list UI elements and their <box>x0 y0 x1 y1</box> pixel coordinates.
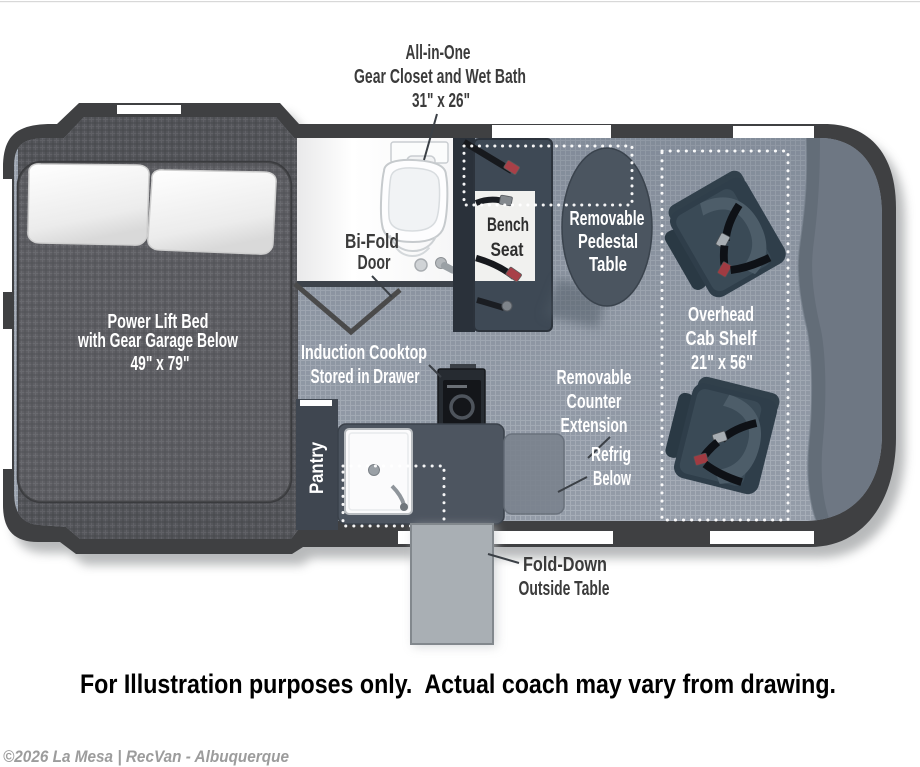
svg-text:Table: Table <box>589 254 627 276</box>
svg-text:with Gear Garage Below: with Gear Garage Below <box>77 330 238 352</box>
svg-text:Counter: Counter <box>567 391 622 413</box>
svg-text:Below: Below <box>593 468 631 490</box>
svg-text:Outside Table: Outside Table <box>519 578 610 600</box>
svg-text:Extension: Extension <box>561 415 628 437</box>
svg-text:Gear Closet and Wet Bath: Gear Closet and Wet Bath <box>354 66 526 88</box>
svg-text:Pedestal: Pedestal <box>578 231 638 253</box>
svg-text:31" x 26": 31" x 26" <box>412 90 470 112</box>
svg-text:21" x 56": 21" x 56" <box>691 352 753 374</box>
svg-text:Door: Door <box>358 252 391 274</box>
svg-text:Fold-Down: Fold-Down <box>523 554 607 576</box>
svg-text:All-in-One: All-in-One <box>406 42 471 64</box>
svg-text:For Illustration purposes only: For Illustration purposes only. Actual c… <box>80 669 836 699</box>
svg-text:Pantry: Pantry <box>307 442 328 494</box>
svg-text:Stored in Drawer: Stored in Drawer <box>311 366 420 388</box>
svg-text:Removable: Removable <box>557 367 632 389</box>
svg-text:©2026 La Mesa | RecVan - Albuq: ©2026 La Mesa | RecVan - Albuquerque <box>3 747 289 766</box>
svg-text:Seat: Seat <box>491 240 525 261</box>
svg-text:Induction Cooktop: Induction Cooktop <box>301 342 427 364</box>
svg-text:Removable: Removable <box>570 208 645 230</box>
svg-text:Bi-Fold: Bi-Fold <box>345 231 399 253</box>
svg-text:Bench: Bench <box>487 215 529 236</box>
svg-text:49" x 79": 49" x 79" <box>131 353 190 375</box>
svg-text:Overhead: Overhead <box>688 304 754 326</box>
svg-text:Cab Shelf: Cab Shelf <box>686 328 757 350</box>
svg-text:Refrig: Refrig <box>591 444 631 466</box>
